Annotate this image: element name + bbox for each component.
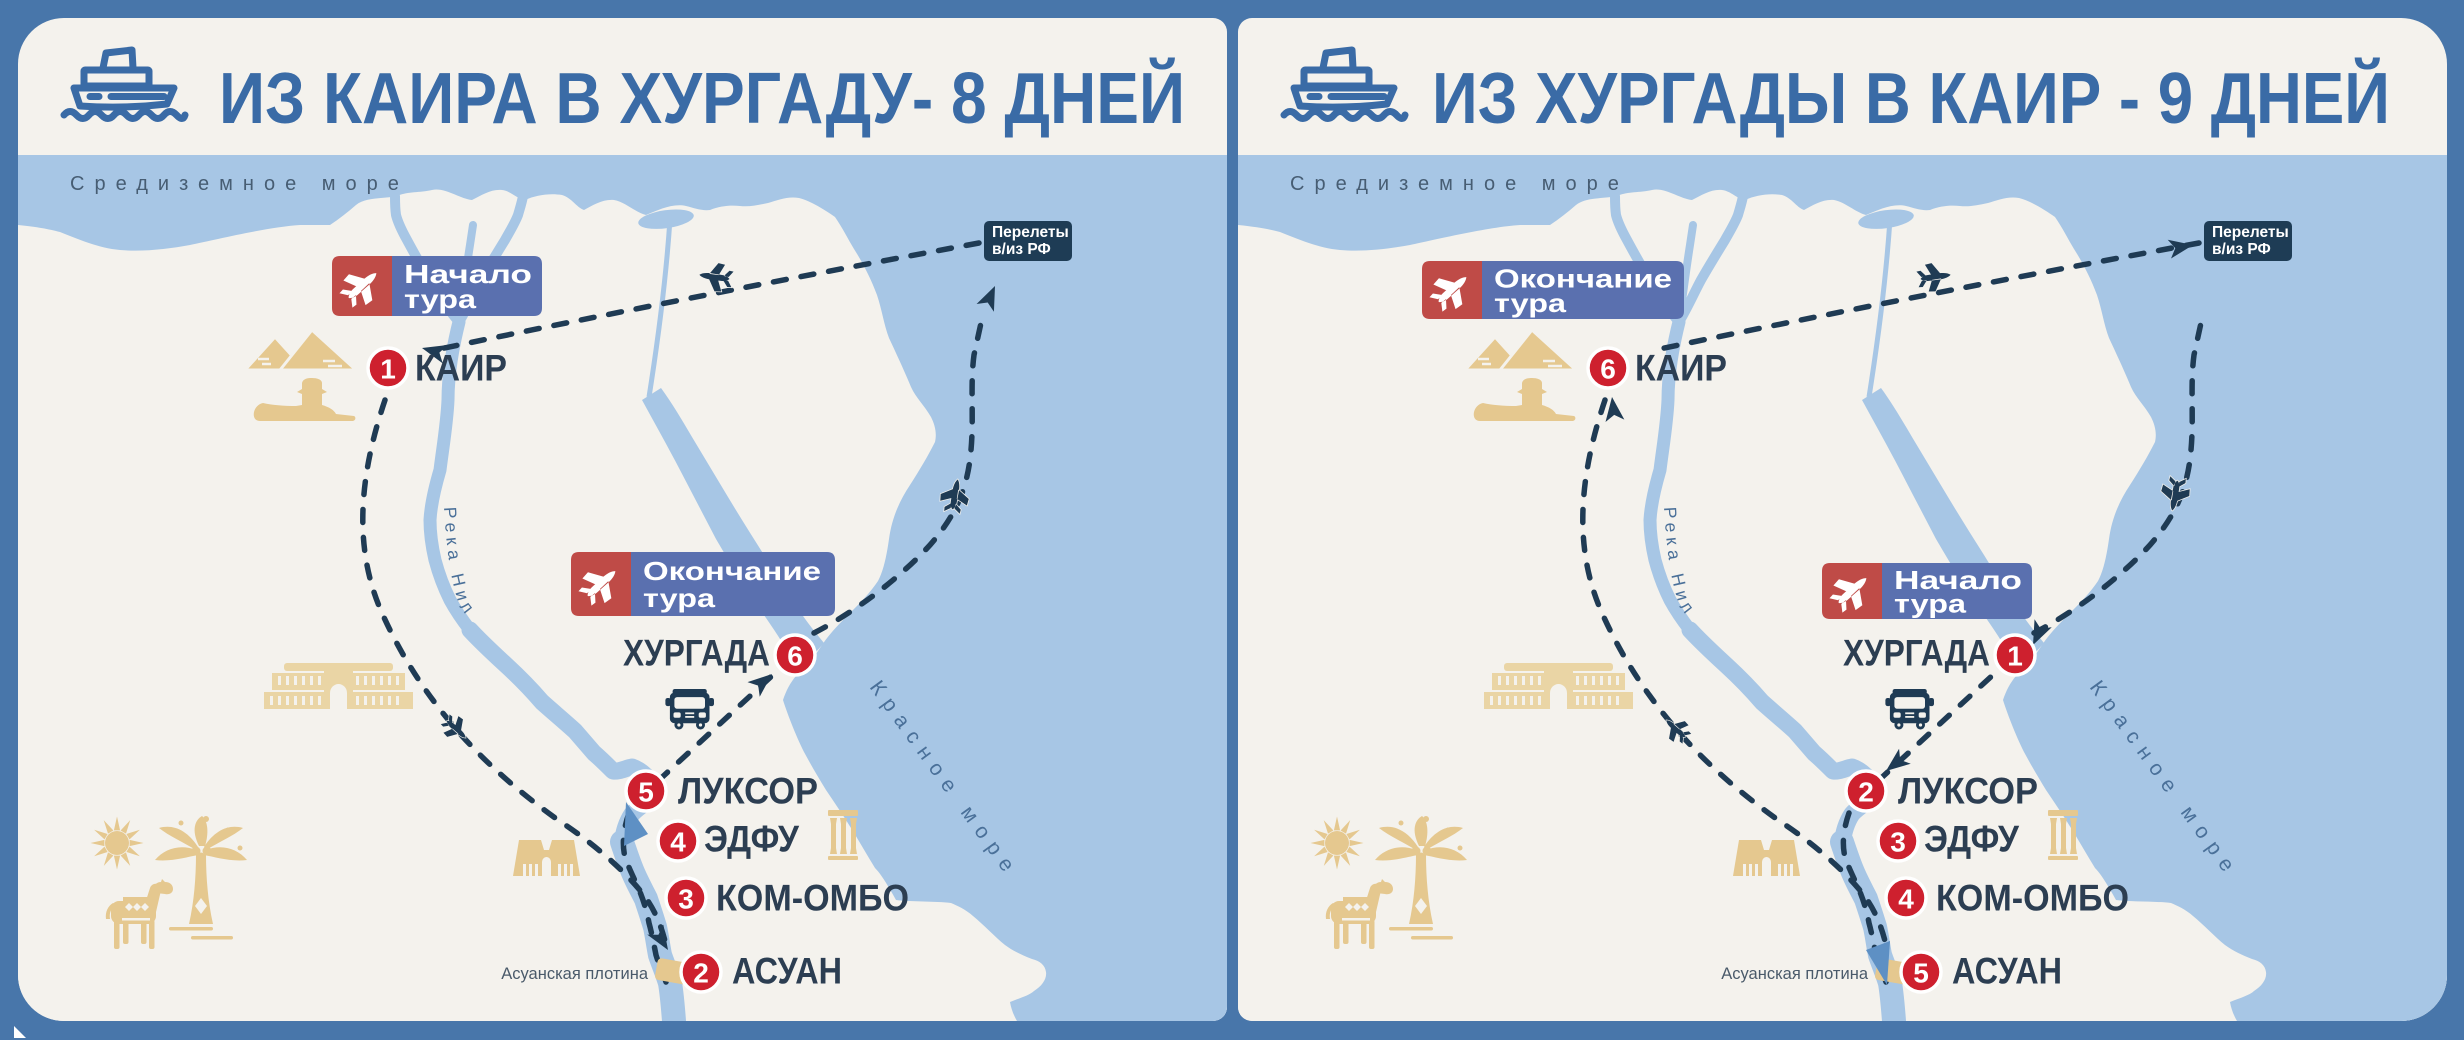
svg-text:4: 4 [670, 827, 686, 858]
svg-text:1: 1 [380, 354, 396, 385]
svg-text:5: 5 [1913, 958, 1929, 989]
svg-text:ИЗ КАИРА В ХУРГАДУ- 8 ДНЕЙ: ИЗ КАИРА В ХУРГАДУ- 8 ДНЕЙ [219, 57, 1185, 139]
svg-text:тура: тура [643, 583, 716, 613]
svg-text:ИЗ ХУРГАДЫ В КАИР - 9 ДНЕЙ: ИЗ ХУРГАДЫ В КАИР - 9 ДНЕЙ [1432, 57, 2390, 139]
svg-text:3: 3 [678, 884, 694, 915]
svg-text:2: 2 [1858, 777, 1874, 808]
svg-text:6: 6 [787, 641, 803, 672]
svg-text:1: 1 [2007, 641, 2023, 672]
svg-text:Окончание: Окончание [643, 556, 821, 586]
svg-text:4: 4 [1898, 884, 1914, 915]
svg-text:3: 3 [1890, 827, 1906, 858]
svg-text:5: 5 [638, 777, 654, 808]
svg-text:2: 2 [693, 958, 709, 989]
svg-text:тура: тура [1494, 288, 1567, 318]
svg-text:тура: тура [1894, 588, 1967, 618]
svg-text:тура: тура [404, 284, 477, 314]
svg-text:6: 6 [1600, 354, 1616, 385]
